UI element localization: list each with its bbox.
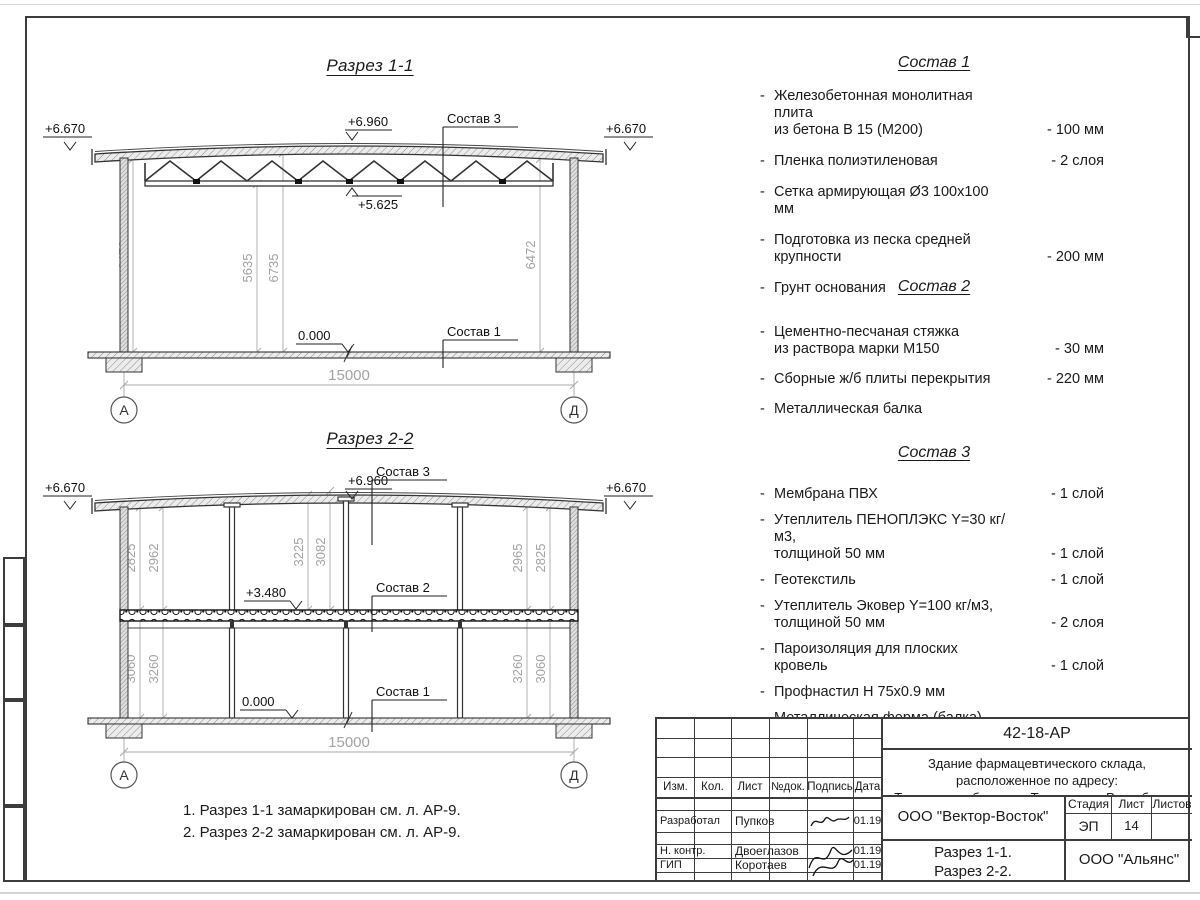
dim-label: 3260 — [146, 655, 161, 684]
signature — [804, 838, 856, 880]
material-item: -Утеплитель Эковер Y=100 кг/м3,толщиной … — [760, 598, 1108, 632]
intermediate-floor — [120, 610, 578, 628]
material-thickness: - 2 слоя — [1051, 615, 1104, 632]
tb-name: Двоеглазов — [735, 844, 807, 858]
callout-label: Состав 3 — [447, 111, 501, 126]
material-item: -Железобетонная монолитная плитаиз бетон… — [760, 88, 1108, 139]
tb-sheet-title-line: Разрез 1-1. — [882, 843, 1064, 862]
elevation-label: 0.000 — [298, 328, 331, 343]
margin-stamp-box — [3, 557, 25, 625]
dim-label: 6472 — [523, 241, 538, 270]
margin-stamp-box — [3, 806, 25, 882]
span-dim-label: 15000 — [328, 734, 370, 751]
foundation-pad — [556, 724, 592, 738]
material-item: -Пароизоляция для плоских кровель- 1 сло… — [760, 641, 1108, 675]
elevation-marks — [43, 130, 653, 352]
material-thickness: - 2 слоя — [1051, 153, 1104, 170]
tb-project-line: Здание фармацевтического склада, располо… — [883, 755, 1191, 789]
tb-sheets-label: Листов — [1152, 795, 1192, 813]
sheet-notes: 1. Разрез 1-1 замаркирован см. л. АР-9. … — [183, 800, 461, 844]
tb-col-data: Дата — [853, 777, 882, 797]
material-thickness: - 220 мм — [1047, 371, 1104, 388]
material-thickness: - 100 мм — [1047, 122, 1104, 139]
tb-line — [881, 748, 1192, 750]
elevation-label: +6.670 — [606, 121, 646, 136]
elevation-label: +6.960 — [348, 114, 388, 129]
dim-label: 6735 — [266, 254, 281, 283]
section-1-drawing: 6472 5635 6735 6472 15000 — [40, 55, 660, 425]
material-thickness: - 30 мм — [1055, 341, 1104, 358]
material-item: -Утеплитель ПЕНОПЛЭКС Y=30 кг/м3,толщино… — [760, 512, 1108, 563]
tb-role: ГИП — [660, 858, 732, 872]
tb-role: Н. контр. — [660, 844, 732, 858]
callout-label: Состав 2 — [376, 580, 430, 595]
tb-col-kol: Кол. — [694, 777, 731, 797]
composition-3-list: Состав 3 -Мембрана ПВХ- 1 слой -Утеплите… — [760, 444, 1108, 736]
composition-1-list: Состав 1 -Железобетонная монолитная плит… — [760, 54, 1108, 311]
material-thickness: - 1 слой — [1051, 546, 1104, 563]
axis-label: Д — [569, 767, 579, 783]
composition-2-heading: Состав 2 — [760, 278, 1108, 296]
tb-col-ndok: №док. — [769, 777, 807, 797]
axis-markers: А Д — [111, 762, 587, 788]
tb-line — [657, 797, 882, 799]
signature — [808, 812, 852, 832]
wall-right — [570, 158, 578, 352]
elevation-label: 0.000 — [242, 694, 275, 709]
margin-stamp-box — [3, 700, 25, 806]
tb-line — [657, 832, 882, 833]
foundation-pad — [556, 358, 592, 372]
tb-doc-code: 42-18-АР — [882, 721, 1192, 747]
tb-company: ООО "Вектор-Восток" — [882, 795, 1064, 839]
scan-edge-bottom — [0, 892, 1200, 894]
composition-2-list: Состав 2 -Цементно-песчаная стяжкаиз рас… — [760, 278, 1108, 431]
elevation-label: +5.625 — [358, 197, 398, 212]
material-item: -Профнастил Н 75х0.9 мм — [760, 684, 1108, 701]
tb-sheet-title: Разрез 1-1. Разрез 2-2. — [882, 841, 1064, 881]
tb-firm: ООО "Альянс" — [1066, 839, 1192, 880]
material-thickness: - 1 слой — [1051, 486, 1104, 503]
material-item: -Металлическая балка — [760, 401, 1108, 418]
tb-date: 01.19 — [853, 810, 882, 832]
tb-stage-value: ЭП — [1066, 813, 1111, 839]
tb-project-desc: Здание фармацевтического склада, располо… — [883, 755, 1191, 795]
axis-markers: А Д — [111, 396, 587, 423]
material-thickness: - 1 слой — [1051, 658, 1104, 675]
elevation-label: +3.480 — [246, 585, 286, 600]
tb-name: Коротаев — [735, 858, 807, 872]
callout-label: Состав 1 — [447, 324, 501, 339]
material-item: -Сетка армирующая Ø3 100х100 мм — [760, 184, 1108, 218]
dim-label: 3225 — [291, 538, 306, 567]
dim-label: 3082 — [313, 538, 328, 567]
material-thickness: - 200 мм — [1047, 249, 1104, 266]
note-line: 1. Разрез 1-1 замаркирован см. л. АР-9. — [183, 800, 461, 822]
tb-stage-label: Стадия — [1066, 795, 1111, 813]
scan-edge-top — [0, 4, 1200, 5]
tb-date: 01.19 — [853, 844, 882, 858]
span-dim-label: 15000 — [328, 367, 370, 384]
callout-label: Состав 3 — [376, 464, 430, 479]
drawing-sheet: Разрез 1-1 6472 5635 6735 6472 15000 — [0, 0, 1200, 900]
tb-role: Разработал — [660, 810, 732, 832]
tb-sheet-number: 14 — [1112, 813, 1151, 839]
dim-label: 3260 — [510, 655, 525, 684]
axis-label: Д — [569, 402, 579, 418]
material-item: -Цементно-песчаная стяжкаиз раствора мар… — [760, 324, 1108, 358]
foundation-pad — [106, 358, 142, 372]
tb-line — [657, 738, 882, 739]
wall-left — [120, 158, 128, 352]
foundation-pad — [106, 724, 142, 738]
composition-3-heading: Состав 3 — [760, 444, 1108, 462]
tb-col-list: Лист — [731, 777, 769, 797]
frame-corner-box — [1186, 18, 1200, 38]
dimension-labels: 6472 5635 6735 6472 15000 — [116, 241, 538, 384]
material-thickness: - 1 слой — [1051, 572, 1104, 589]
dim-label: 2825 — [533, 544, 548, 573]
margin-stamp-box — [3, 625, 25, 700]
tb-col-podpis: Подпись — [807, 777, 853, 797]
elevation-label: +6.670 — [45, 121, 85, 136]
tb-sheets-total — [1152, 813, 1192, 839]
title-block: Изм. Кол. Лист №док. Подпись Дата Разраб… — [655, 717, 1190, 882]
material-item: -Подготовка из песка среднейкрупности- 2… — [760, 232, 1108, 266]
dim-label: 2962 — [146, 544, 161, 573]
dim-label: 5635 — [240, 254, 255, 283]
section-2-drawing: 2825 2962 3225 3082 2965 2825 3060 3260 … — [40, 430, 660, 815]
tb-date: 01.19 — [853, 858, 882, 872]
material-item: -Сборные ж/б плиты перекрытия- 220 мм — [760, 371, 1108, 388]
axis-label: А — [119, 402, 129, 418]
material-item: -Геотекстиль- 1 слой — [760, 572, 1108, 589]
tb-name: Пупков — [735, 810, 807, 832]
note-line: 2. Разрез 2-2 замаркирован см. л. АР-9. — [183, 822, 461, 844]
composition-1-heading: Состав 1 — [760, 54, 1108, 72]
callout-label: Состав 1 — [376, 684, 430, 699]
dim-label: 3060 — [533, 655, 548, 684]
dim-label: 2965 — [510, 544, 525, 573]
tb-sheet-label: Лист — [1112, 795, 1151, 813]
tb-col-izm: Изм. — [657, 777, 694, 797]
elevation-label: +6.670 — [45, 480, 85, 495]
roof-truss — [145, 161, 553, 186]
tb-line — [657, 757, 882, 758]
tb-sheet-title-line: Разрез 2-2. — [882, 862, 1064, 881]
axis-label: А — [119, 767, 129, 783]
material-item: -Мембрана ПВХ- 1 слой — [760, 486, 1108, 503]
elevation-label: +6.670 — [606, 480, 646, 495]
material-item: -Пленка полиэтиленовая- 2 слоя — [760, 153, 1108, 170]
